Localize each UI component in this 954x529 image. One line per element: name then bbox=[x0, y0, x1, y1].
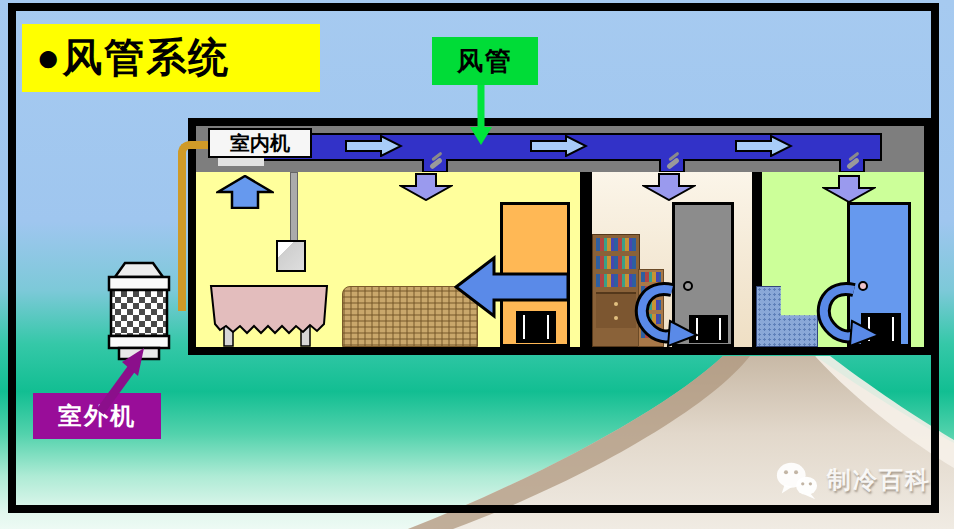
watermark-text: 制冷百科 bbox=[827, 464, 931, 496]
airflow-right-arrow bbox=[345, 135, 403, 157]
supply-air-down-arrow bbox=[822, 175, 876, 203]
room-study bbox=[592, 172, 752, 347]
room-living bbox=[196, 172, 580, 347]
diffuser-icon bbox=[846, 157, 860, 170]
diffuser-icon bbox=[666, 157, 680, 170]
book-row bbox=[641, 272, 661, 282]
duct-callout-label: 风管 bbox=[432, 37, 538, 85]
ceiling-drop-pipe bbox=[290, 172, 298, 242]
duct-outlet bbox=[659, 159, 685, 173]
room-bedroom bbox=[762, 172, 924, 347]
grille-slat bbox=[719, 318, 721, 339]
airflow-right-arrow bbox=[530, 135, 588, 157]
diffuser-icon bbox=[429, 157, 443, 170]
hanging-diffuser-box bbox=[276, 240, 306, 272]
supply-air-down-arrow bbox=[642, 173, 696, 201]
book-row bbox=[596, 256, 636, 269]
duct-outlet bbox=[839, 159, 865, 173]
armchair bbox=[756, 286, 818, 347]
indoor-unit-vent bbox=[218, 158, 264, 166]
supply-air-down-arrow bbox=[399, 173, 453, 201]
duct-outlet bbox=[422, 159, 448, 173]
slide-title: ●风管系统 bbox=[22, 24, 320, 92]
airflow-right-arrow bbox=[735, 135, 793, 157]
book-row bbox=[596, 238, 636, 251]
cross-room-left-arrow bbox=[454, 255, 570, 319]
return-air-up-arrow bbox=[216, 175, 274, 209]
dining-table bbox=[208, 284, 330, 348]
door-return-curved-arrow bbox=[812, 282, 884, 348]
refrigerant-pipe bbox=[178, 141, 208, 311]
rooms-row bbox=[196, 172, 924, 347]
wechat-icon bbox=[775, 460, 819, 500]
watermark: 制冷百科 bbox=[775, 455, 950, 505]
duct-pointer-arrow bbox=[466, 85, 496, 147]
slide-canvas: 室内机 bbox=[0, 0, 954, 529]
building: 室内机 bbox=[188, 118, 932, 355]
interior-wall bbox=[580, 172, 592, 347]
door-return-curved-arrow bbox=[630, 282, 702, 348]
grille-slat bbox=[892, 317, 894, 341]
indoor-unit-label: 室内机 bbox=[208, 128, 312, 158]
outdoor-pointer-arrow bbox=[88, 344, 158, 416]
